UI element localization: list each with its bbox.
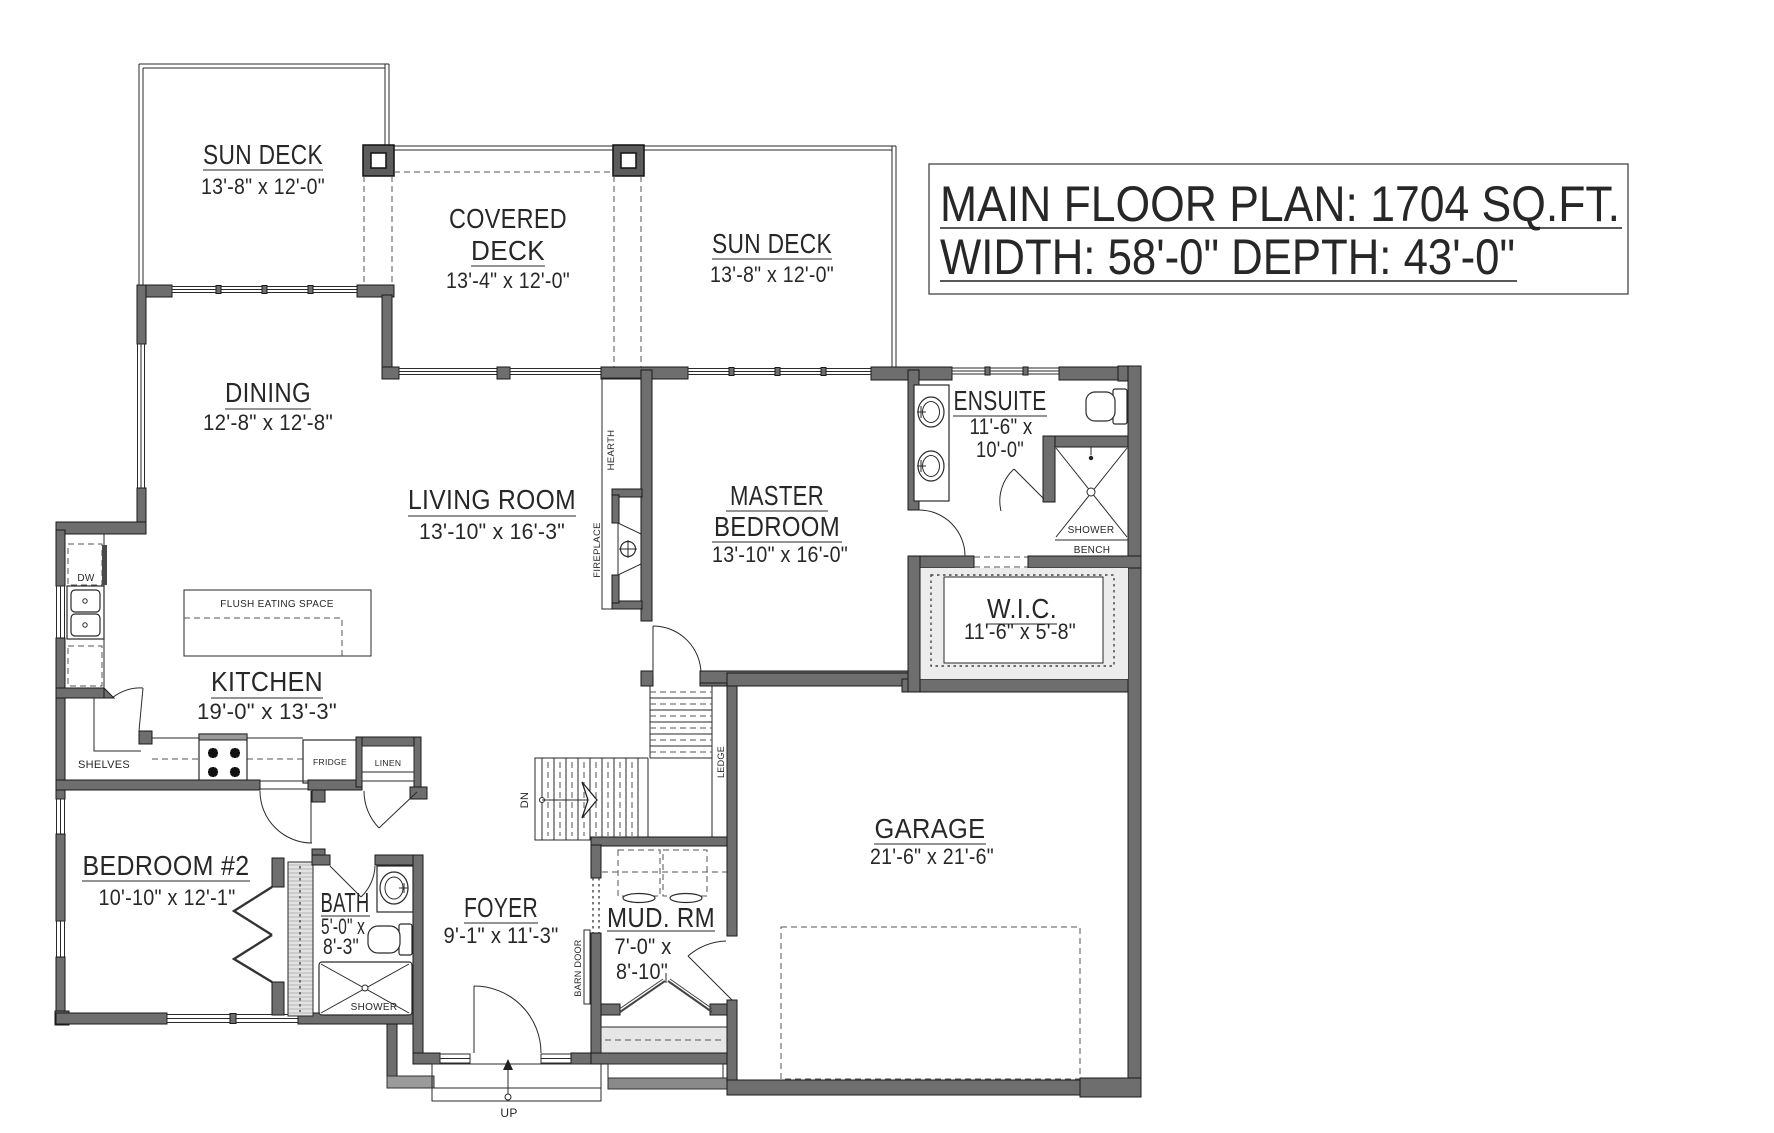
svg-text:11'-6" x 5'-8": 11'-6" x 5'-8"	[964, 619, 1076, 644]
svg-text:MASTER: MASTER	[730, 480, 824, 511]
svg-text:21'-6" x 21'-6": 21'-6" x 21'-6"	[870, 844, 994, 869]
svg-text:SHOWER: SHOWER	[351, 1002, 398, 1013]
svg-text:DN: DN	[519, 792, 531, 809]
svg-text:11'-6" x: 11'-6" x	[970, 414, 1033, 439]
svg-text:HEARTH: HEARTH	[606, 430, 617, 471]
svg-text:WIDTH: 58'-0" DEPTH: 43'-0": WIDTH: 58'-0" DEPTH: 43'-0"	[940, 229, 1515, 285]
svg-text:FIREPLACE: FIREPLACE	[592, 522, 603, 578]
svg-text:DECK: DECK	[471, 235, 545, 266]
svg-text:LEDGE: LEDGE	[716, 746, 726, 778]
svg-text:13'-10" x 16'-0": 13'-10" x 16'-0"	[712, 542, 848, 567]
svg-text:19'-0" x 13'-3": 19'-0" x 13'-3"	[197, 699, 337, 724]
svg-text:LIVING ROOM: LIVING ROOM	[408, 484, 576, 515]
svg-text:13'-8" x 12'-0": 13'-8" x 12'-0"	[201, 174, 325, 199]
svg-text:13'-8" x 12'-0": 13'-8" x 12'-0"	[710, 262, 834, 287]
svg-text:DW: DW	[77, 573, 95, 584]
svg-text:13'-10" x 16'-3": 13'-10" x 16'-3"	[419, 519, 565, 544]
svg-text:BENCH: BENCH	[1074, 545, 1111, 556]
svg-text:SUN DECK: SUN DECK	[712, 228, 832, 259]
svg-text:KITCHEN: KITCHEN	[211, 666, 323, 697]
svg-text:BARN DOOR: BARN DOOR	[573, 939, 583, 996]
svg-text:FLUSH EATING SPACE: FLUSH EATING SPACE	[220, 599, 333, 610]
svg-text:8'-10": 8'-10"	[616, 959, 668, 984]
svg-text:MAIN FLOOR PLAN: 1704 SQ.FT.: MAIN FLOOR PLAN: 1704 SQ.FT.	[940, 176, 1620, 232]
svg-text:ENSUITE: ENSUITE	[954, 385, 1047, 416]
svg-text:12'-8" x 12'-8": 12'-8" x 12'-8"	[203, 410, 333, 435]
svg-text:9'-1" x 11'-3": 9'-1" x 11'-3"	[444, 923, 559, 948]
svg-text:GARAGE: GARAGE	[875, 813, 986, 844]
svg-text:LINEN: LINEN	[375, 758, 402, 768]
svg-text:COVERED: COVERED	[449, 203, 567, 234]
svg-text:SHELVES: SHELVES	[78, 759, 130, 771]
svg-text:BEDROOM: BEDROOM	[714, 511, 840, 542]
svg-text:UP: UP	[500, 1106, 517, 1120]
svg-text:13'-4" x 12'-0": 13'-4" x 12'-0"	[446, 268, 570, 293]
svg-text:SHOWER: SHOWER	[1068, 525, 1115, 536]
svg-text:FOYER: FOYER	[464, 892, 538, 923]
svg-text:8'-3": 8'-3"	[323, 934, 359, 959]
svg-text:DINING: DINING	[225, 377, 311, 408]
svg-text:7'-0" x: 7'-0" x	[615, 934, 672, 959]
svg-text:10'-0": 10'-0"	[976, 437, 1024, 462]
svg-text:10'-10" x 12'-1": 10'-10" x 12'-1"	[99, 885, 236, 910]
svg-text:SUN DECK: SUN DECK	[203, 139, 323, 170]
svg-text:MUD. RM: MUD. RM	[607, 902, 715, 933]
svg-text:BEDROOM #2: BEDROOM #2	[83, 850, 250, 881]
svg-text:FRIDGE: FRIDGE	[313, 757, 347, 767]
